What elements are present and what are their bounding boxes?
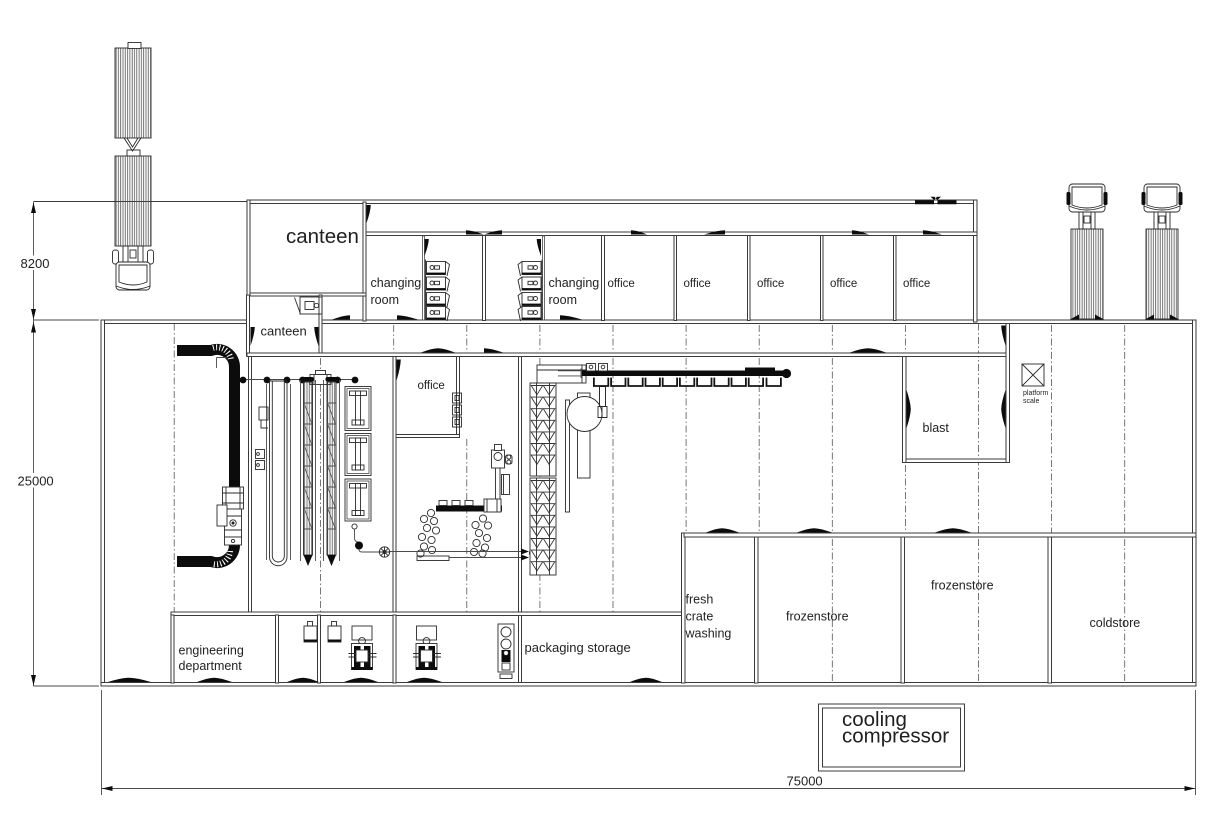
svg-text:office: office (903, 278, 930, 290)
svg-text:washing: washing (685, 627, 732, 641)
svg-text:changing: changing (549, 276, 600, 290)
svg-text:office: office (608, 278, 635, 290)
svg-text:office: office (418, 380, 445, 392)
svg-text:frozenstore: frozenstore (786, 610, 849, 624)
svg-text:canteen: canteen (261, 324, 307, 339)
svg-text:frozenstore: frozenstore (931, 579, 994, 593)
svg-text:compressor: compressor (842, 725, 949, 748)
svg-text:engineering: engineering (179, 644, 244, 658)
svg-text:room: room (549, 293, 577, 307)
svg-text:blast: blast (923, 421, 950, 435)
svg-text:canteen: canteen (286, 225, 359, 248)
svg-text:scale: scale (1023, 398, 1039, 405)
svg-text:crate: crate (686, 610, 714, 624)
svg-text:75000: 75000 (787, 774, 823, 789)
svg-text:room: room (371, 293, 399, 307)
svg-text:25000: 25000 (18, 474, 54, 489)
svg-text:department: department (179, 659, 243, 673)
svg-text:office: office (830, 278, 857, 290)
svg-text:platform: platform (1023, 390, 1048, 397)
svg-text:packaging storage: packaging storage (525, 640, 631, 655)
svg-text:coldstore: coldstore (1090, 616, 1141, 630)
svg-text:fresh: fresh (686, 593, 714, 607)
svg-text:office: office (757, 278, 784, 290)
svg-text:changing: changing (371, 276, 422, 290)
svg-text:office: office (684, 278, 711, 290)
svg-text:8200: 8200 (21, 256, 50, 271)
